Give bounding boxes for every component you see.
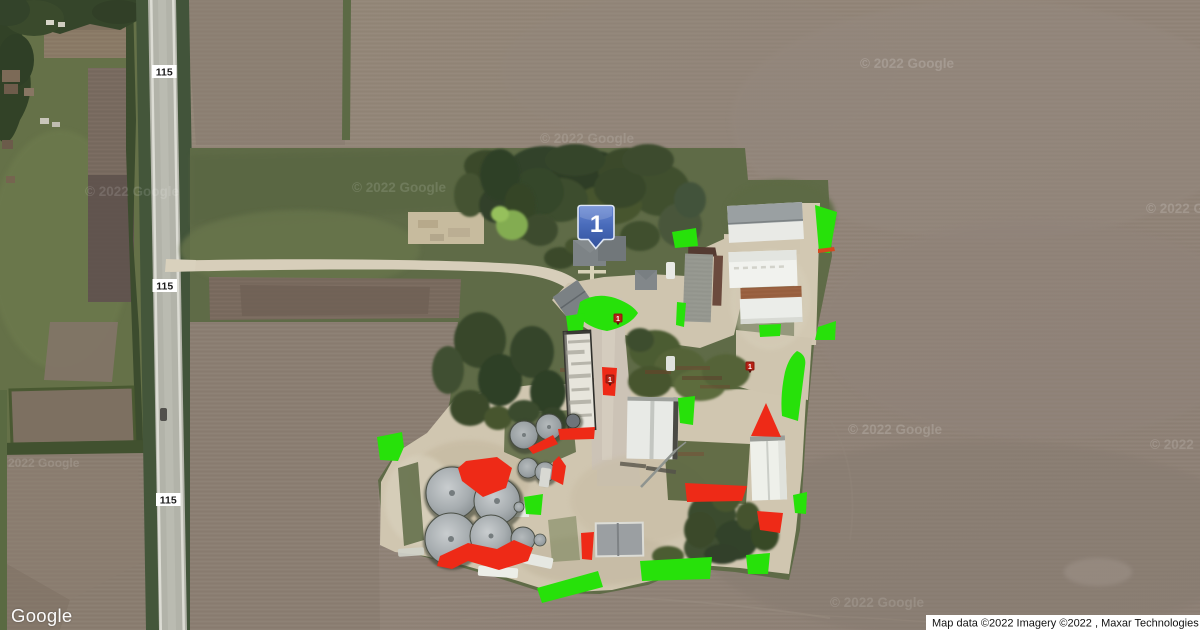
svg-text:© 2022: © 2022 (1150, 437, 1194, 452)
svg-text:© 2022 Google: © 2022 Google (85, 184, 179, 199)
svg-text:© 2022 Google: © 2022 Google (860, 56, 954, 71)
svg-text:© 2022 Google: © 2022 Google (830, 595, 924, 610)
svg-text:2022 Google: 2022 Google (8, 456, 80, 470)
svg-text:1: 1 (748, 364, 752, 371)
svg-text:© 2022 Google: © 2022 Google (352, 180, 446, 195)
svg-text:1: 1 (590, 211, 603, 238)
svg-text:© 2022 Google: © 2022 Google (540, 131, 634, 146)
svg-text:© 2022 Google: © 2022 Google (848, 422, 942, 437)
svg-text:1: 1 (616, 316, 620, 323)
svg-text:115: 115 (156, 281, 173, 293)
svg-text:115: 115 (160, 495, 177, 507)
svg-text:1: 1 (608, 377, 612, 384)
svg-text:115: 115 (156, 67, 173, 79)
svg-text:Map data ©2022 Imagery ©2022 ,: Map data ©2022 Imagery ©2022 , Maxar Tec… (932, 618, 1199, 630)
svg-text:© 2022 Google: © 2022 Google (1146, 201, 1200, 216)
svg-text:Google: Google (11, 605, 72, 626)
